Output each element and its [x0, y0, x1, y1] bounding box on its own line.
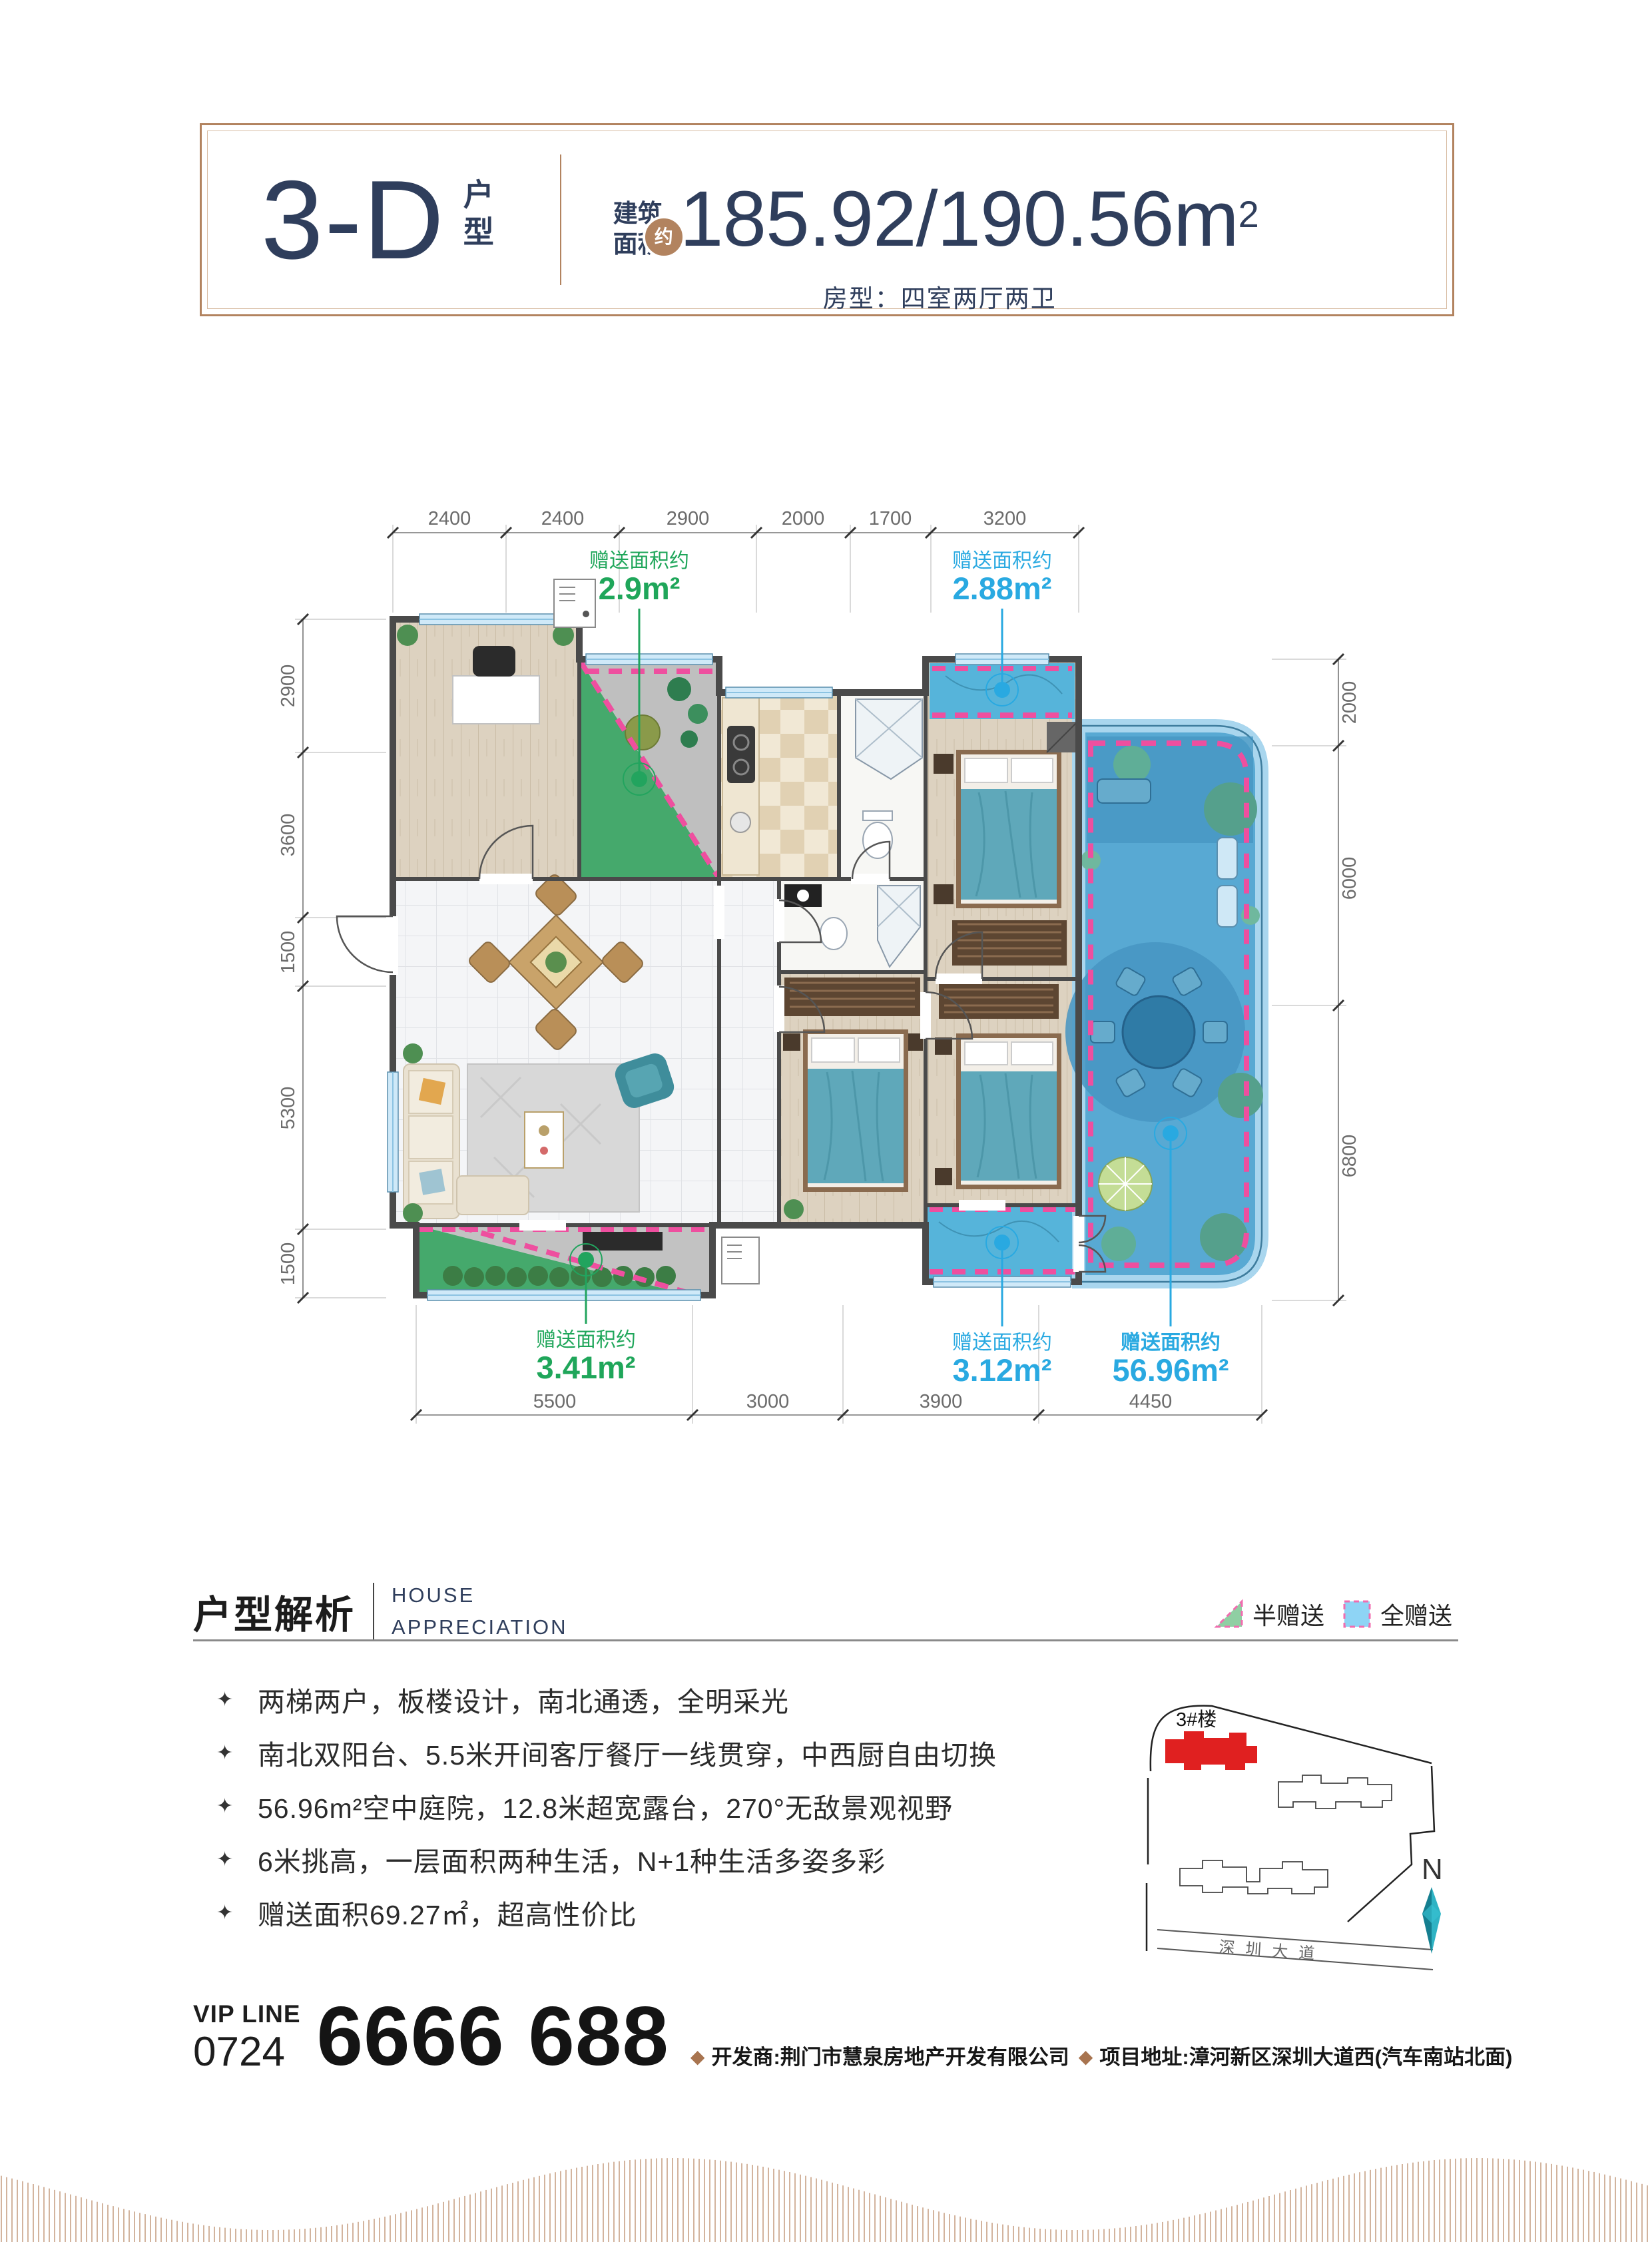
room-corridor [719, 879, 779, 1225]
compass-icon [1422, 1887, 1441, 1954]
bedroom2-wardrobe [952, 920, 1067, 966]
bullet-3: ✦56.96m²空中庭院，12.8米超宽露台，270°无敌景观视野 [216, 1779, 997, 1832]
bullet-1: ✦两梯两户，板楼设计，南北通透，全明采光 [216, 1673, 997, 1726]
kitchen-counter [722, 698, 759, 875]
dim-bottom-1: 5500 [533, 1391, 577, 1412]
bedroom3-bed [783, 1029, 923, 1192]
unit-type-code: 3-D [261, 164, 445, 276]
area-block: 建筑 面积 约 185.92/190.56m2 房型：四室两厅两卫 [613, 180, 1258, 260]
dim-right-2: 6000 [1339, 857, 1360, 900]
analysis-subtitle-line1: HOUSE [392, 1579, 568, 1611]
dim-left-1: 2900 [278, 665, 299, 708]
dim-top-6: 3200 [983, 508, 1027, 529]
room-layout: 房型：四室两厅两卫 [823, 278, 1057, 314]
analysis-subtitle: HOUSE APPRECIATION [392, 1579, 568, 1643]
approx-badge: 约 [643, 216, 685, 258]
svg-text:赠送面积约: 赠送面积约 [536, 1329, 636, 1351]
area-caption: 建筑 面积 约 [613, 198, 663, 260]
vip-block: VIP LINE 0724 [193, 2002, 301, 2073]
road-label: 深圳大道 [1219, 1938, 1326, 1964]
bullet-1-text: 两梯两户，板楼设计，南北通透，全明采光 [258, 1679, 789, 1719]
analysis-title: 户型解析 [193, 1583, 356, 1639]
bullet-5-text: 赠送面积69.27㎡，超高性价比 [258, 1892, 637, 1932]
terrace [1065, 726, 1263, 1282]
full-gift-icon [1342, 1599, 1372, 1629]
terrace-umbrella [1099, 1157, 1152, 1211]
analysis-subtitle-line2: APPRECIATION [392, 1611, 568, 1643]
bullet-4-text: 6米挑高，一层面积两种生活，N+1种生活多姿多彩 [258, 1839, 886, 1879]
dim-left-4: 5300 [278, 1087, 299, 1130]
svg-text:赠送面积约: 赠送面积约 [589, 550, 689, 572]
title-box: 3-D 户型 建筑 面积 约 185.92/190.56m2 房型：四室两厅两卫 [200, 123, 1454, 316]
building-3-label: 3#楼 [1176, 1709, 1217, 1731]
legend-full-gift-label: 全赠送 [1380, 1597, 1452, 1631]
bath1-toilet [863, 822, 892, 858]
dim-left-5: 1500 [278, 1243, 299, 1286]
title-box-inner: 3-D 户型 建筑 面积 约 185.92/190.56m2 房型：四室两厅两卫 [207, 131, 1447, 309]
bullet-list: ✦两梯两户，板楼设计，南北通透，全明采光 ✦南北双阳台、5.5米开间客厅餐厅一线… [216, 1673, 997, 1939]
sparkle-icon: ✦ [216, 1688, 258, 1711]
contact-info: ◆ 开发商:荆门市慧泉房地产开发有限公司 ◆ 项目地址:漳河新区深圳大道西(汽车… [681, 2040, 1512, 2070]
svg-text:2.9m²: 2.9m² [599, 571, 681, 606]
developer-text: 开发商:荆门市慧泉房地产开发有限公司 [711, 2040, 1069, 2070]
header-divider [560, 154, 561, 285]
diamond-icon: ◆ [690, 2046, 705, 2068]
bath2-toilet [820, 918, 847, 950]
living-room [403, 1043, 677, 1223]
dim-left-2: 3600 [278, 814, 299, 857]
dim-right-3: 6800 [1339, 1135, 1360, 1178]
dim-top-3: 2900 [667, 508, 710, 529]
unit-type-suffix: 户型 [455, 178, 499, 265]
bullet-2: ✦南北双阳台、5.5米开间客厅餐厅一线贯穿，中西厨自由切换 [216, 1726, 997, 1779]
footer: VIP LINE 0724 6666 688 ◆ 开发商:荆门市慧泉房地产开发有… [193, 2001, 1512, 2073]
svg-text:56.96m²: 56.96m² [1112, 1352, 1229, 1388]
legend-full-gift: 全赠送 [1342, 1597, 1452, 1631]
analysis-header: 户型解析 HOUSE APPRECIATION [193, 1579, 568, 1643]
dim-right-1: 2000 [1339, 681, 1360, 724]
analysis-title-divider [373, 1583, 374, 1640]
svg-text:赠送面积约: 赠送面积约 [1121, 1332, 1221, 1354]
bullet-5: ✦赠送面积69.27㎡，超高性价比 [216, 1886, 997, 1939]
sparkle-icon: ✦ [216, 1795, 258, 1818]
floor-plan: 2400 2400 2900 2000 1700 3200 2900 3600 … [253, 446, 1412, 1512]
sparkle-icon: ✦ [216, 1848, 258, 1871]
north-label: N [1422, 1853, 1443, 1886]
study-plant-1 [397, 625, 418, 646]
area-superscript: 2 [1239, 193, 1258, 235]
bullet-4: ✦6米挑高，一层面积两种生活，N+1种生活多姿多彩 [216, 1832, 997, 1886]
building-outline-1 [1278, 1775, 1392, 1809]
dim-top-1: 2400 [428, 508, 471, 529]
half-gift-icon [1214, 1599, 1244, 1629]
dim-bottom-4: 4450 [1129, 1391, 1173, 1412]
vip-line-label: VIP LINE [193, 2002, 301, 2026]
study-desk [453, 676, 539, 724]
ac-unit-2 [722, 1237, 759, 1284]
vip-phone-number: 6666 688 [317, 2001, 669, 2073]
dim-top-5: 1700 [869, 508, 912, 529]
kitchen-sink [730, 812, 750, 832]
building-outline-2 [1180, 1860, 1328, 1894]
legend-half-gift: 半赠送 [1214, 1597, 1324, 1631]
svg-text:3.41m²: 3.41m² [537, 1350, 636, 1385]
svg-text:2.88m²: 2.88m² [953, 571, 1052, 606]
dim-bottom-2: 3000 [746, 1391, 790, 1412]
building-3-highlighted [1165, 1731, 1257, 1770]
dim-top-2: 2400 [541, 508, 585, 529]
svg-text:赠送面积约: 赠送面积约 [952, 1332, 1052, 1354]
area-value: 185.92/190.56m2 [680, 180, 1258, 258]
terrace-bench [1097, 779, 1151, 803]
sparkle-icon: ✦ [216, 1901, 258, 1924]
site-map: 3#楼 深圳大道 N [1119, 1665, 1472, 1978]
vip-area-code: 0724 [193, 2032, 301, 2073]
diamond-icon: ◆ [1079, 2046, 1093, 2068]
wave-decoration [0, 2149, 1652, 2242]
svg-text:赠送面积约: 赠送面积约 [952, 550, 1052, 572]
study-chair [473, 646, 515, 677]
sparkle-icon: ✦ [216, 1741, 258, 1765]
bullet-3-text: 56.96m²空中庭院，12.8米超宽露台，270°无敌景观视野 [258, 1786, 953, 1826]
ac-unit-1 [554, 579, 595, 627]
dim-bottom-3: 3900 [920, 1391, 963, 1412]
dim-top-4: 2000 [782, 508, 825, 529]
legend-half-gift-label: 半赠送 [1252, 1597, 1324, 1631]
section-divider [193, 1639, 1458, 1641]
bullet-2-text: 南北双阳台、5.5米开间客厅餐厅一线贯穿，中西厨自由切换 [258, 1733, 997, 1773]
svg-text:3.12m²: 3.12m² [953, 1352, 1052, 1388]
legend: 半赠送 全赠送 [1214, 1597, 1452, 1631]
address-text: 项目地址:漳河新区深圳大道西(汽车南站北面) [1099, 2040, 1512, 2070]
dim-left-3: 1500 [278, 931, 299, 974]
